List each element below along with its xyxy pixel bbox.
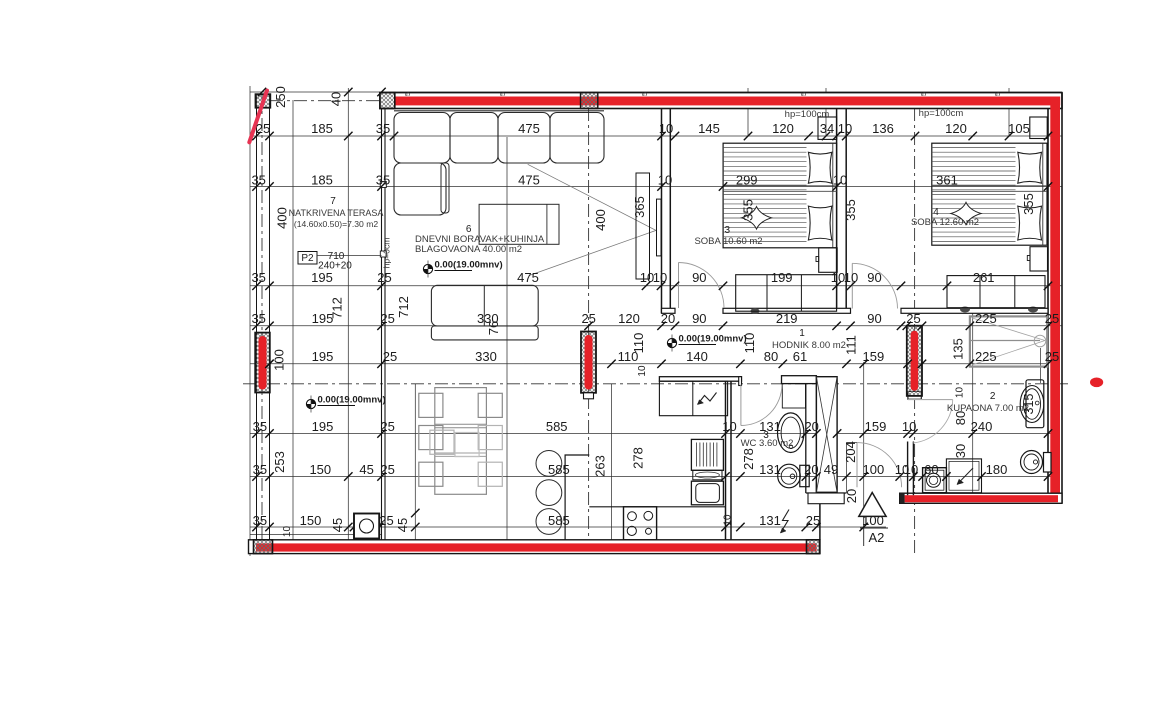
svg-text:SOBA 10.60 m2: SOBA 10.60 m2 <box>694 236 762 247</box>
svg-text:A2: A2 <box>868 530 884 545</box>
svg-text:45: 45 <box>330 518 345 532</box>
svg-text:P2: P2 <box>301 253 314 264</box>
svg-text:131: 131 <box>759 513 781 528</box>
svg-text:20: 20 <box>844 489 859 503</box>
svg-text:0.00(19.00mnv): 0.00(19.00mnv) <box>679 334 747 345</box>
svg-text:45: 45 <box>395 518 410 532</box>
svg-text:HODNIK 8.00 m2: HODNIK 8.00 m2 <box>772 340 846 351</box>
svg-text:355: 355 <box>1021 193 1036 215</box>
svg-text:225: 225 <box>975 311 997 326</box>
svg-text:299: 299 <box>736 173 758 188</box>
svg-text:10: 10 <box>653 270 667 285</box>
svg-text:361: 361 <box>936 173 958 188</box>
svg-text:180: 180 <box>986 462 1008 477</box>
svg-text:111: 111 <box>844 335 859 355</box>
svg-text:hp=0cm: hp=0cm <box>382 238 392 269</box>
svg-text:330: 330 <box>475 349 497 364</box>
svg-text:355: 355 <box>843 199 858 221</box>
svg-text:49: 49 <box>824 462 838 477</box>
svg-text:90: 90 <box>692 311 706 326</box>
svg-text:185: 185 <box>311 173 333 188</box>
svg-text:0.00(19.00mnv): 0.00(19.00mnv) <box>318 395 386 406</box>
svg-text:10: 10 <box>282 526 293 538</box>
svg-text:131: 131 <box>759 462 781 477</box>
svg-text:5: 5 <box>995 92 1002 96</box>
svg-text:34: 34 <box>820 121 834 136</box>
svg-text:475: 475 <box>518 121 540 136</box>
svg-text:3: 3 <box>725 225 731 236</box>
svg-text:10: 10 <box>659 121 673 136</box>
svg-text:5: 5 <box>500 92 507 96</box>
svg-text:(14.60x0.50)=7.30 m2: (14.60x0.50)=7.30 m2 <box>294 219 379 229</box>
svg-text:NATKRIVENA TERASA: NATKRIVENA TERASA <box>289 208 384 218</box>
svg-text:150: 150 <box>309 462 331 477</box>
svg-text:10: 10 <box>833 173 847 188</box>
svg-text:5: 5 <box>405 92 412 96</box>
svg-text:25: 25 <box>1045 349 1059 364</box>
svg-text:10: 10 <box>838 121 852 136</box>
svg-text:219: 219 <box>776 311 798 326</box>
svg-text:7: 7 <box>330 196 336 207</box>
svg-text:250: 250 <box>273 86 288 108</box>
svg-text:712: 712 <box>396 296 411 318</box>
svg-text:150: 150 <box>300 513 322 528</box>
svg-text:712: 712 <box>329 297 344 319</box>
svg-text:5: 5 <box>642 92 649 96</box>
svg-text:10: 10 <box>955 387 966 399</box>
svg-text:WC 3.60 m2: WC 3.60 m2 <box>741 438 794 449</box>
svg-text:355: 355 <box>741 199 756 221</box>
svg-text:585: 585 <box>546 419 568 434</box>
svg-text:195: 195 <box>311 270 333 285</box>
svg-text:400: 400 <box>275 207 290 229</box>
svg-text:20: 20 <box>804 462 818 477</box>
svg-text:10: 10 <box>658 173 672 188</box>
svg-text:25: 25 <box>380 311 394 326</box>
svg-text:140: 140 <box>686 349 708 364</box>
svg-text:365: 365 <box>632 196 647 218</box>
svg-text:1: 1 <box>799 328 805 339</box>
svg-text:120: 120 <box>618 311 640 326</box>
svg-text:195: 195 <box>312 349 334 364</box>
svg-text:204: 204 <box>843 441 858 463</box>
svg-text:278: 278 <box>631 447 646 469</box>
svg-text:225: 225 <box>975 349 997 364</box>
svg-text:61: 61 <box>793 349 807 364</box>
svg-text:585: 585 <box>548 513 570 528</box>
svg-text:60: 60 <box>924 462 938 477</box>
svg-text:0.00(19.00mnv): 0.00(19.00mnv) <box>435 260 503 271</box>
svg-text:SOBA 12.60 m2: SOBA 12.60 m2 <box>911 217 979 228</box>
svg-text:90: 90 <box>867 270 881 285</box>
svg-text:315: 315 <box>1022 394 1036 415</box>
svg-text:35: 35 <box>253 513 267 528</box>
svg-text:35: 35 <box>253 419 267 434</box>
svg-text:195: 195 <box>312 419 334 434</box>
svg-text:hp=100cm: hp=100cm <box>919 108 964 119</box>
svg-text:90: 90 <box>692 270 706 285</box>
svg-text:136: 136 <box>872 121 894 136</box>
svg-text:5: 5 <box>801 92 808 96</box>
svg-text:5: 5 <box>921 92 928 96</box>
svg-text:261: 261 <box>973 270 995 285</box>
svg-text:76: 76 <box>486 321 501 335</box>
svg-text:120: 120 <box>772 121 794 136</box>
svg-text:110: 110 <box>742 333 757 354</box>
svg-text:80: 80 <box>764 349 778 364</box>
svg-text:25: 25 <box>581 311 595 326</box>
svg-text:475: 475 <box>518 173 540 188</box>
svg-text:585: 585 <box>548 462 570 477</box>
svg-text:45: 45 <box>359 462 373 477</box>
svg-text:2: 2 <box>990 391 996 402</box>
svg-text:185: 185 <box>311 121 333 136</box>
svg-text:278: 278 <box>741 448 756 470</box>
svg-text:400: 400 <box>593 209 608 231</box>
svg-text:110: 110 <box>631 333 646 354</box>
svg-text:10: 10 <box>844 270 858 285</box>
svg-text:10: 10 <box>637 365 648 377</box>
svg-text:135: 135 <box>951 338 966 360</box>
svg-text:30: 30 <box>953 444 968 458</box>
svg-text:120: 120 <box>945 121 967 136</box>
svg-text:263: 263 <box>592 455 607 477</box>
svg-text:253: 253 <box>272 451 287 473</box>
svg-text:145: 145 <box>698 121 720 136</box>
svg-text:80: 80 <box>953 411 968 425</box>
svg-text:10: 10 <box>722 419 736 434</box>
svg-text:25: 25 <box>1045 311 1059 326</box>
svg-text:90: 90 <box>867 311 881 326</box>
svg-text:40: 40 <box>329 92 344 106</box>
svg-text:159: 159 <box>865 419 887 434</box>
svg-text:35: 35 <box>253 462 267 477</box>
svg-text:131: 131 <box>759 419 781 434</box>
svg-text:BLAGOVAONA 40.00 m2: BLAGOVAONA 40.00 m2 <box>415 244 522 255</box>
svg-text:hp=100cm: hp=100cm <box>785 109 830 120</box>
svg-text:25: 25 <box>383 349 397 364</box>
svg-text:475: 475 <box>517 270 539 285</box>
svg-text:199: 199 <box>771 270 793 285</box>
